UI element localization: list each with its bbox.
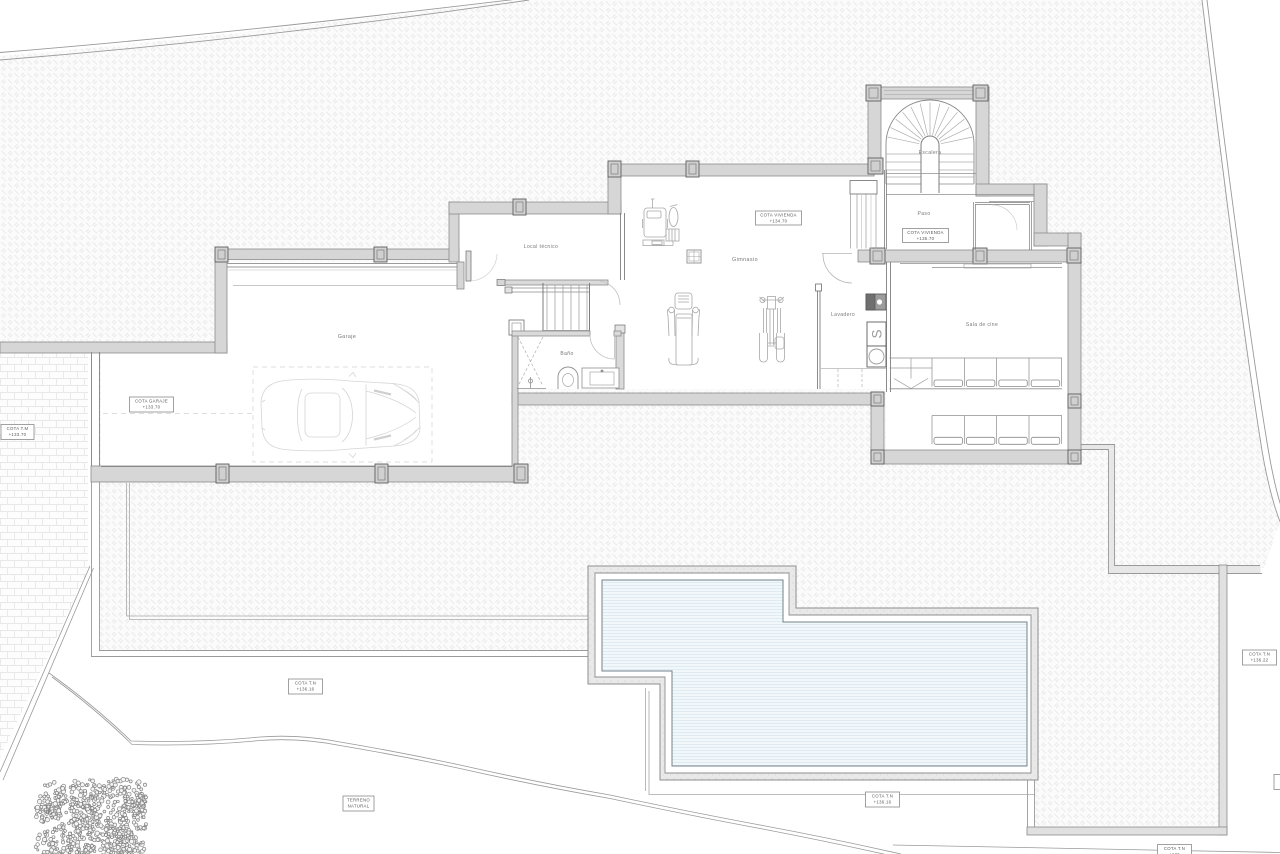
svg-text:+133.70: +133.70 xyxy=(143,405,161,410)
svg-text:COTA VIVIENDA: COTA VIVIENDA xyxy=(760,213,797,218)
svg-text:Lavadero: Lavadero xyxy=(831,312,855,318)
svg-text:+134.70: +134.70 xyxy=(770,219,788,224)
svg-text:Local técnico: Local técnico xyxy=(524,244,558,250)
svg-text:NATURAL: NATURAL xyxy=(348,804,370,809)
svg-text:Paso: Paso xyxy=(918,211,931,217)
svg-text:COTA T.N: COTA T.N xyxy=(1164,846,1185,851)
svg-text:+136.22: +136.22 xyxy=(1251,658,1269,663)
svg-text:COTA VIVIENDA: COTA VIVIENDA xyxy=(907,230,944,235)
svg-text:+136.16: +136.16 xyxy=(874,800,892,805)
svg-text:+135.70: +135.70 xyxy=(917,236,935,241)
svg-text:S: S xyxy=(869,329,884,338)
svg-text:Escalera: Escalera xyxy=(919,150,942,156)
svg-text:+133.70: +133.70 xyxy=(9,432,27,437)
svg-text:Sala de cine: Sala de cine xyxy=(966,322,998,328)
svg-text:TERRENO: TERRENO xyxy=(347,798,370,803)
svg-text:Baño: Baño xyxy=(560,351,573,357)
svg-text:+136.16: +136.16 xyxy=(297,687,315,692)
svg-text:COTA T.M: COTA T.M xyxy=(7,426,29,431)
svg-text:COTA GARAJE: COTA GARAJE xyxy=(135,399,168,404)
svg-text:COTA T.N: COTA T.N xyxy=(295,681,316,686)
svg-text:COTA T.N: COTA T.N xyxy=(1249,652,1270,657)
svg-text:COTA T.N: COTA T.N xyxy=(872,794,893,799)
svg-text:Garaje: Garaje xyxy=(338,334,357,340)
svg-text:Gimnasio: Gimnasio xyxy=(732,257,758,263)
